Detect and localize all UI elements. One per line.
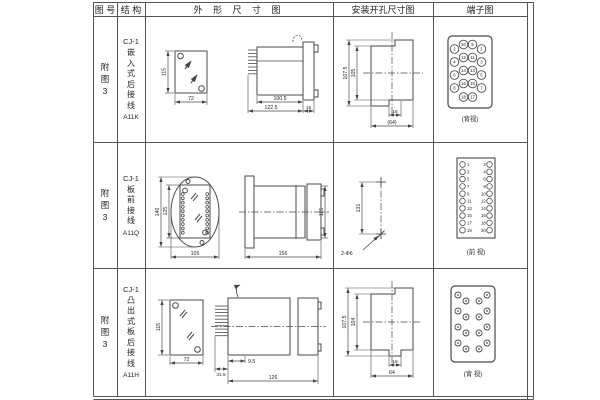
row1-outline-drawing: 115 72 100.5 122.5 15 [145, 16, 333, 142]
dim-side-pins: 31.5 [216, 372, 226, 378]
dim-front-width: 72 [188, 96, 194, 102]
svg-text:19: 19 [467, 228, 472, 233]
dim-mount-pitch: 16 [392, 109, 398, 115]
dim-side-body: 100.5 [274, 96, 287, 102]
svg-text:8: 8 [483, 184, 486, 189]
row2-outline-drawing: 140 125 105 156 115 [145, 142, 333, 268]
dim-side-length: 126 [269, 375, 278, 381]
terminal-numbers: 12 34 56 78 910 1112 1314 1516 1718 1920 [467, 162, 486, 233]
row3-code: A11H [123, 372, 139, 379]
svg-text:18: 18 [461, 95, 466, 100]
svg-text:1: 1 [480, 47, 483, 52]
dim-mount-width: (64) [387, 120, 396, 126]
dim-mount-inner: 105 [351, 69, 357, 78]
dim-side-length: 156 [279, 251, 288, 257]
row3-figure-label: 附 图 3 [93, 268, 117, 396]
row1-model: CJ-1 [123, 37, 139, 46]
svg-text:2: 2 [483, 162, 486, 167]
row2-code: A11Q [123, 230, 139, 237]
svg-text:18: 18 [481, 221, 486, 226]
svg-text:17: 17 [470, 95, 475, 100]
header-outline: 外 形 尺 寸 图 [145, 2, 333, 16]
row3-desc: 凸 出 式 板 后 接 线 [127, 296, 135, 370]
row1-structure: CJ-1 嵌 入 式 后 接 线 A11K [117, 16, 145, 142]
header-terminal: 端子图 [433, 2, 527, 16]
svg-text:15: 15 [467, 213, 472, 218]
dim-mount-pitch: 16 [392, 359, 398, 365]
svg-text:3: 3 [467, 169, 470, 174]
row1-figure-label: 附 图 3 [93, 16, 117, 142]
dim-front-outer: 140 [155, 208, 161, 217]
datasheet-page: 图 号 结 构 外 形 尺 寸 图 安装开孔尺寸图 端子图 附 图 3 CJ-1… [0, 0, 600, 400]
row3-mounting-drawing: 107.5 104 16 64 [333, 268, 433, 396]
terminal-pin-dots [457, 294, 488, 350]
dim-front-width: 105 [191, 251, 200, 257]
dim-mount-holes: 2-Φ6 [341, 251, 353, 257]
svg-text:4: 4 [453, 60, 456, 65]
svg-text:14: 14 [461, 68, 466, 73]
svg-text:9: 9 [471, 42, 474, 47]
row3-structure: CJ-1 凸 出 式 板 后 接 线 A11H [117, 268, 145, 396]
svg-text:13: 13 [467, 206, 472, 211]
svg-text:4: 4 [483, 169, 486, 174]
svg-text:7: 7 [467, 184, 470, 189]
dim-mount-height: 131 [356, 204, 362, 213]
svg-text:16: 16 [481, 213, 486, 218]
svg-text:5: 5 [467, 177, 470, 182]
dim-side-flange: 15 [306, 105, 312, 111]
terminal-circles [460, 162, 493, 233]
svg-text:3: 3 [480, 60, 483, 65]
row2-structure: CJ-1 板 前 接 线 A11Q [117, 142, 145, 268]
dim-side-gap: 9.5 [248, 359, 255, 365]
svg-text:17: 17 [467, 221, 472, 226]
row2-desc: 板 前 接 线 [127, 185, 135, 227]
row3-outline-drawing: 115 72 9.5 31.5 126 [145, 268, 333, 396]
svg-text:11: 11 [467, 199, 472, 204]
svg-text:13: 13 [470, 68, 475, 73]
dim-side-height: 115 [319, 208, 325, 216]
svg-text:9: 9 [467, 191, 470, 196]
svg-text:12: 12 [481, 199, 486, 204]
row1-terminal-drawing: 2 4 6 8 10 12 14 16 9 11 13 15 1 3 5 7 1… [433, 16, 527, 142]
svg-text:6: 6 [483, 177, 486, 182]
dim-mount-outer: 107.5 [343, 66, 349, 79]
dim-side-total: 122.5 [265, 105, 278, 111]
svg-text:11: 11 [470, 55, 475, 60]
svg-text:1: 1 [467, 162, 470, 167]
row1-code: A11K [123, 114, 138, 121]
dim-front-height: 115 [162, 68, 168, 76]
dim-front-inner: 125 [163, 207, 169, 216]
row1-desc: 嵌 入 式 后 接 线 [127, 48, 135, 111]
svg-text:8: 8 [453, 86, 456, 91]
svg-text:7: 7 [480, 86, 483, 91]
header-structure: 结 构 [117, 2, 145, 16]
header-figure: 图 号 [93, 2, 117, 16]
svg-text:6: 6 [453, 73, 456, 78]
row3-model: CJ-1 [123, 285, 139, 294]
row2-mounting-drawing: 131 2-Φ6 [333, 142, 433, 268]
dim-front-height: 115 [156, 323, 162, 331]
svg-text:5: 5 [480, 73, 483, 78]
svg-text:10: 10 [461, 42, 466, 47]
svg-text:16: 16 [461, 81, 466, 86]
row2-terminal-caption: (前 视) [467, 247, 486, 256]
row3-terminal-drawing: (背 视) [433, 268, 527, 396]
row2-model: CJ-1 [123, 174, 139, 183]
dim-mount-outer: 107.5 [342, 315, 348, 328]
dim-mount-width: 64 [389, 370, 395, 376]
row2-figure-label: 附 图 3 [93, 142, 117, 268]
dim-front-width: 72 [184, 357, 190, 363]
header-mounting: 安装开孔尺寸图 [333, 2, 433, 16]
svg-text:2: 2 [453, 47, 456, 52]
svg-text:12: 12 [461, 55, 466, 60]
dim-mount-inner: 104 [351, 318, 357, 327]
row3-terminal-caption: (背 视) [464, 369, 483, 378]
row1-mounting-drawing: 107.5 105 16 (64) [333, 16, 433, 142]
row1-terminal-caption: (背视) [462, 114, 479, 123]
svg-text:14: 14 [481, 206, 486, 211]
svg-text:20: 20 [481, 228, 486, 233]
svg-text:15: 15 [470, 81, 475, 86]
terminal-pins [455, 292, 490, 352]
svg-text:10: 10 [481, 191, 486, 196]
row2-terminal-drawing: 12 34 56 78 910 1112 1314 1516 1718 1920… [433, 142, 527, 268]
